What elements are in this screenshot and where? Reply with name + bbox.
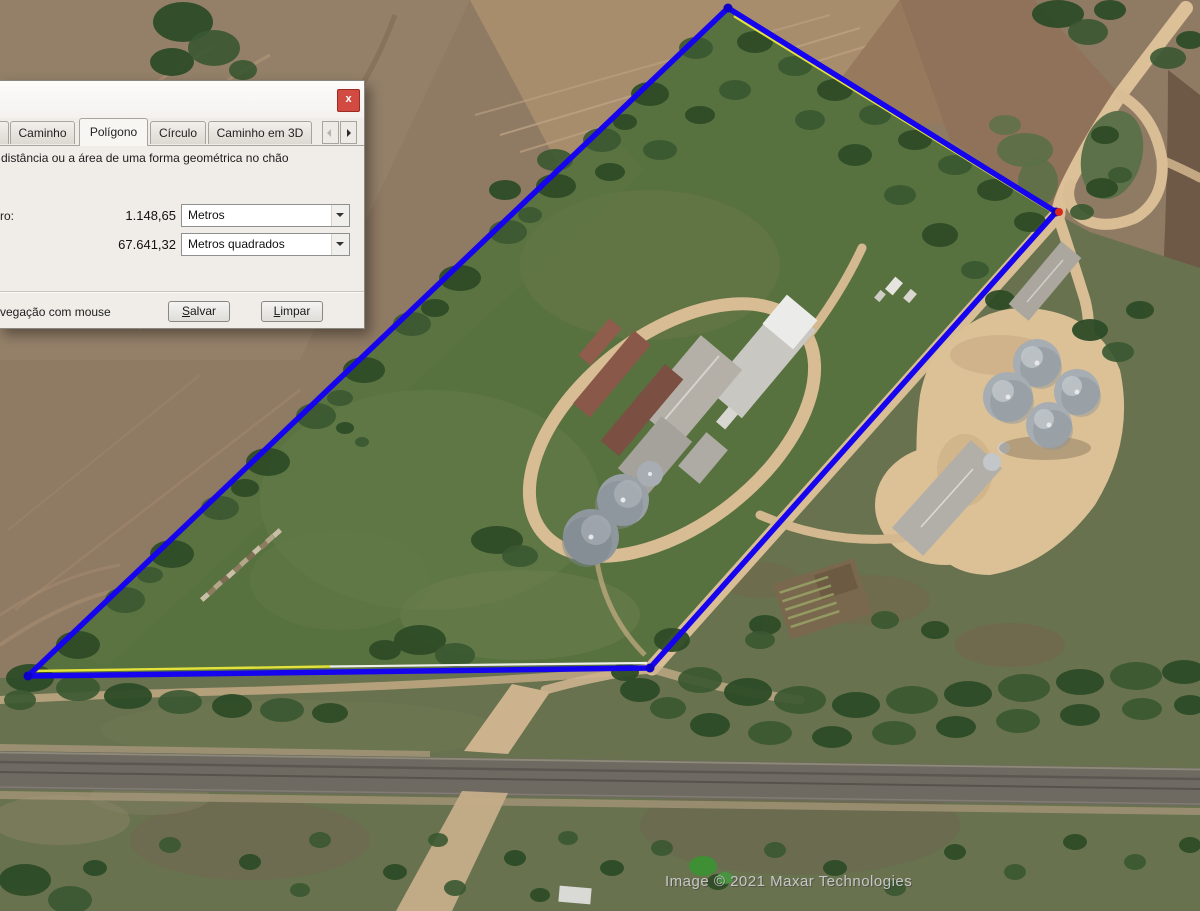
dialog-separator xyxy=(0,291,364,293)
area-unit-select[interactable]: Metros quadrados xyxy=(181,233,350,256)
google-earth-window: Image © 2021 Maxar Technologies Image © … xyxy=(0,0,1200,911)
tab-partial[interactable] xyxy=(0,121,9,144)
close-icon[interactable]: x xyxy=(337,89,360,112)
chevron-left-icon xyxy=(327,129,331,137)
perimeter-unit-select[interactable]: Metros xyxy=(181,204,350,227)
active-vertex-marker[interactable] xyxy=(1055,208,1063,216)
polygon-vertex[interactable] xyxy=(724,4,733,13)
save-button[interactable]: Salvar xyxy=(168,301,230,322)
imagery-credit: Image © 2021 Maxar Technologies xyxy=(665,873,912,890)
ruler-dialog: x Caminho Polígono Círculo Caminho em 3D… xyxy=(0,80,365,329)
dialog-titlebar[interactable] xyxy=(0,81,364,118)
area-unit-value: Metros quadrados xyxy=(188,237,285,251)
combo-arrow-box[interactable] xyxy=(331,234,349,255)
combo-arrow-box[interactable] xyxy=(331,205,349,226)
tab-caminho-3d[interactable]: Caminho em 3D xyxy=(208,121,312,144)
area-value: 67.641,32 xyxy=(56,237,176,252)
mouse-navigation-label: vegação com mouse xyxy=(0,305,111,319)
tab-strip: Caminho Polígono Círculo Caminho em 3D xyxy=(0,118,364,146)
tab-poligono[interactable]: Polígono xyxy=(79,118,148,146)
dialog-description: distância ou a área de uma forma geométr… xyxy=(1,151,289,165)
tab-scroll-right-button[interactable] xyxy=(340,121,357,144)
chevron-down-icon xyxy=(336,242,344,246)
tab-circulo[interactable]: Círculo xyxy=(150,121,206,144)
polygon-vertex[interactable] xyxy=(646,664,655,673)
clear-button[interactable]: Limpar xyxy=(261,301,323,322)
chevron-right-icon xyxy=(347,129,351,137)
polygon-vertex[interactable] xyxy=(24,672,33,681)
perimeter-label: ro: xyxy=(0,209,14,223)
perimeter-value: 1.148,65 xyxy=(56,208,176,223)
tab-caminho[interactable]: Caminho xyxy=(10,121,75,144)
chevron-down-icon xyxy=(336,213,344,217)
tab-scroll-left-button[interactable] xyxy=(322,121,339,144)
perimeter-unit-value: Metros xyxy=(188,208,225,222)
